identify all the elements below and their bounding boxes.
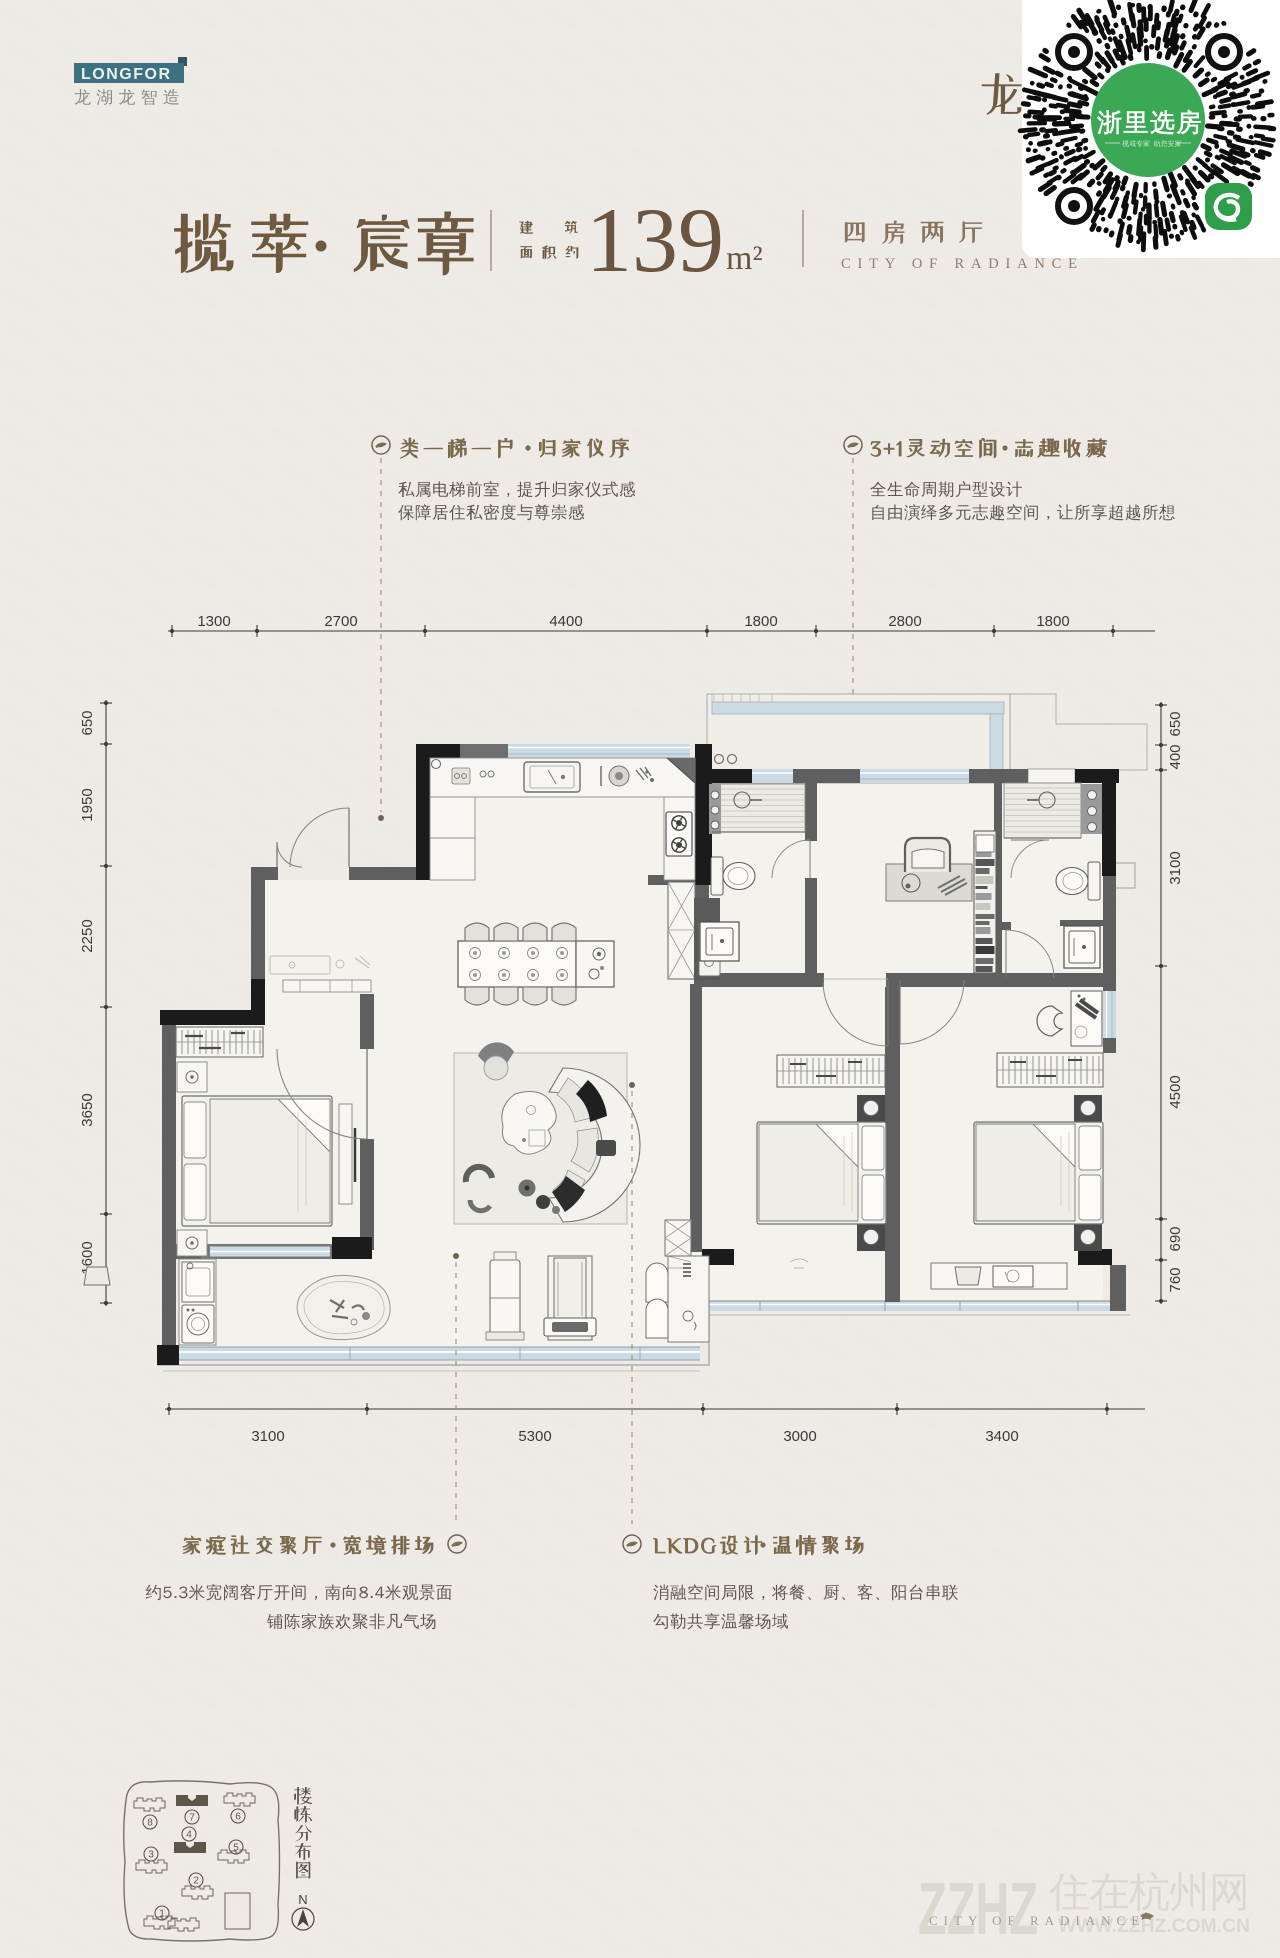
svg-text:2800: 2800 [888, 613, 921, 630]
svg-text:3100: 3100 [1167, 851, 1184, 884]
svg-text:3100: 3100 [251, 1428, 284, 1445]
svg-text:7: 7 [189, 1813, 195, 1824]
svg-text:3400: 3400 [985, 1428, 1018, 1445]
svg-text:3650: 3650 [79, 1093, 96, 1126]
svg-text:m²: m² [726, 240, 763, 277]
svg-text:CITY OF RADIANCE: CITY OF RADIANCE [841, 256, 1084, 272]
svg-text:2700: 2700 [324, 613, 357, 630]
svg-text:650: 650 [79, 710, 96, 735]
svg-text:690: 690 [1167, 1226, 1184, 1251]
svg-text:1950: 1950 [79, 788, 96, 821]
svg-text:139: 139 [586, 189, 724, 291]
svg-text:1800: 1800 [744, 613, 777, 630]
svg-text:1800: 1800 [1036, 613, 1069, 630]
svg-text:4500: 4500 [1167, 1075, 1184, 1108]
svg-text:8: 8 [147, 1818, 153, 1829]
svg-text:2: 2 [193, 1876, 199, 1887]
svg-text:650: 650 [1167, 711, 1184, 736]
svg-text:3000: 3000 [783, 1428, 816, 1445]
svg-text:CITY OF RADIANCE: CITY OF RADIANCE [929, 1913, 1145, 1928]
svg-text:ZZHZ: ZZHZ [918, 1867, 1038, 1950]
svg-text:400: 400 [1167, 744, 1184, 769]
svg-text:5300: 5300 [518, 1428, 551, 1445]
svg-text:4: 4 [186, 1830, 192, 1841]
svg-text:2250: 2250 [79, 919, 96, 952]
svg-text:N: N [298, 1892, 307, 1907]
svg-text:3: 3 [148, 1850, 154, 1861]
svg-text:LONGFOR: LONGFOR [81, 66, 172, 83]
svg-text:4400: 4400 [549, 613, 582, 630]
svg-text:1300: 1300 [197, 613, 230, 630]
svg-text:6: 6 [235, 1812, 241, 1823]
svg-text:760: 760 [1167, 1267, 1184, 1292]
